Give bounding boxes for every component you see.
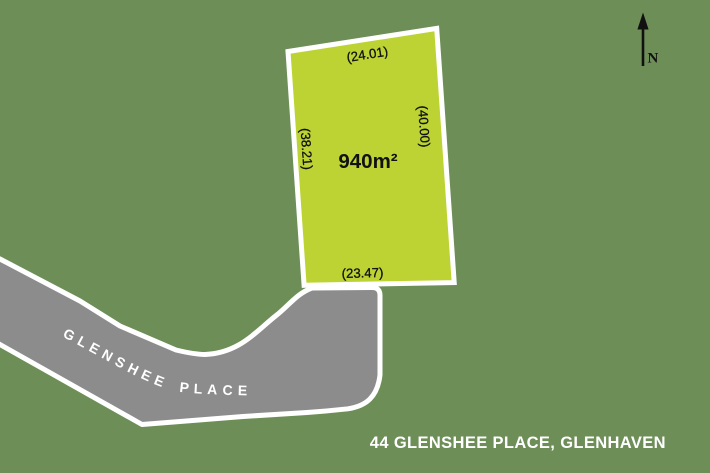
svg-text:940m²: 940m² [338,150,397,173]
svg-text:(40.00): (40.00) [415,105,433,148]
svg-text:(23.47): (23.47) [341,265,383,281]
svg-text:N: N [648,51,659,67]
svg-text:(38.21): (38.21) [298,128,316,171]
